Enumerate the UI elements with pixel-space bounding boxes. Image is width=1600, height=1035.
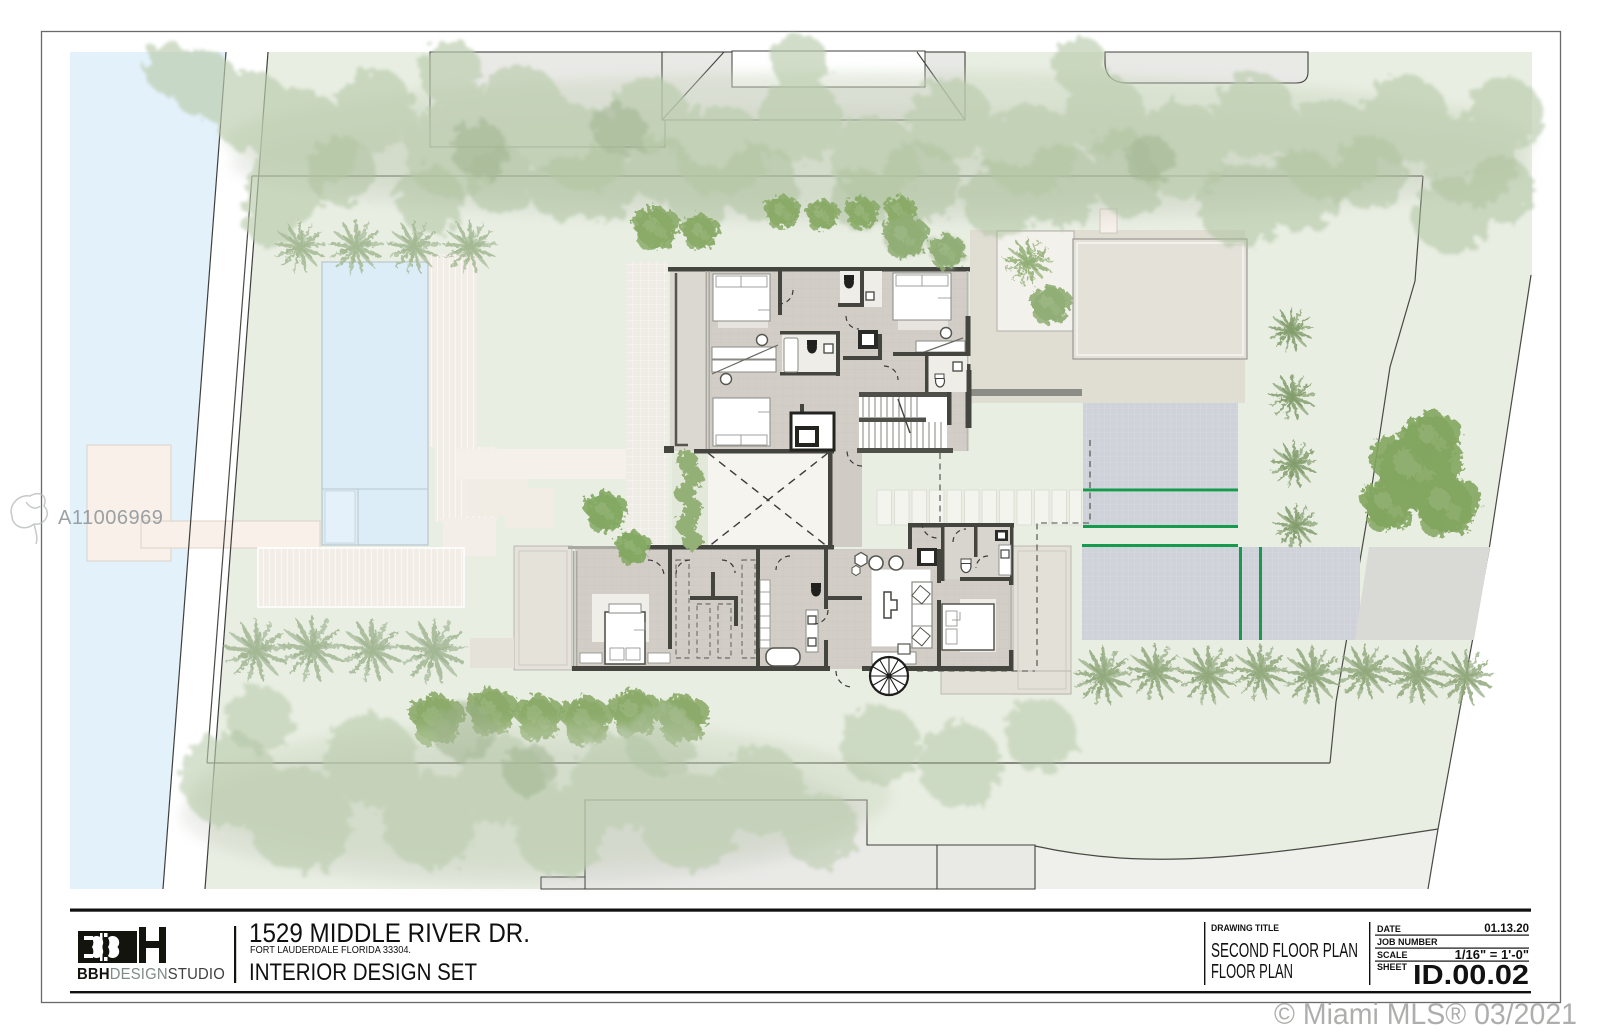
svg-text:FORT LAUDERDALE FLORIDA 33304.: FORT LAUDERDALE FLORIDA 33304. (250, 944, 411, 956)
svg-text:FLOOR PLAN: FLOOR PLAN (1211, 961, 1293, 983)
svg-text:SECOND FLOOR PLAN: SECOND FLOOR PLAN (1211, 940, 1358, 962)
svg-text:ID.00.02: ID.00.02 (1413, 959, 1529, 990)
svg-text:© Miami MLS® 03/2021: © Miami MLS® 03/2021 (1274, 998, 1577, 1031)
svg-text:INTERIOR DESIGN SET: INTERIOR DESIGN SET (249, 959, 477, 986)
svg-text:JOB NUMBER: JOB NUMBER (1377, 937, 1438, 947)
svg-text:BBHDESIGNSTUDIO: BBHDESIGNSTUDIO (77, 966, 225, 983)
svg-text:A11006969: A11006969 (58, 507, 163, 529)
svg-text:SCALE: SCALE (1377, 950, 1408, 960)
svg-text:DRAWING TITLE: DRAWING TITLE (1211, 923, 1279, 934)
svg-text:SHEET: SHEET (1377, 962, 1408, 972)
svg-text:DATE: DATE (1377, 924, 1401, 934)
svg-text:01.13.20: 01.13.20 (1484, 923, 1529, 935)
